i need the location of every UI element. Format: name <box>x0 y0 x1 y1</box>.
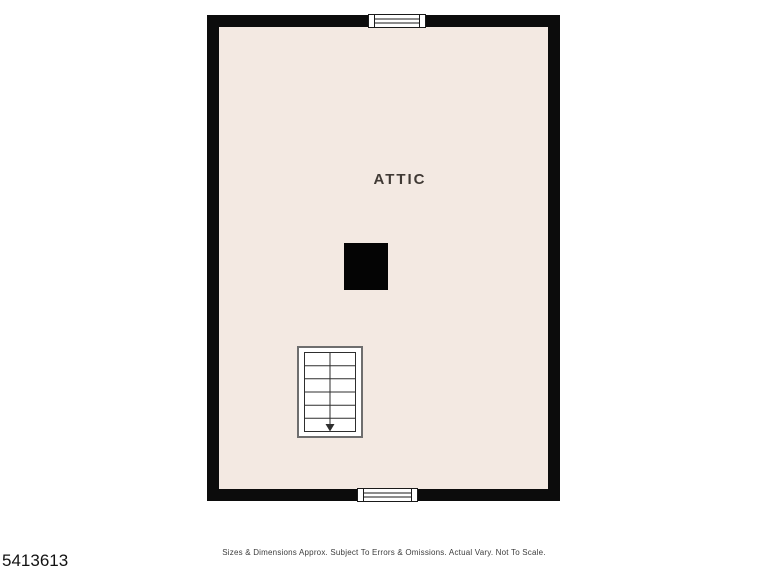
floorplan-page: ATTIC Sizes & Dimensions Approx. Subject… <box>0 0 768 576</box>
window-bottom-icon <box>357 488 418 502</box>
staircase <box>297 346 363 438</box>
chimney <box>344 243 388 290</box>
attic-floorplan: ATTIC <box>207 15 560 501</box>
window-top-icon <box>368 14 426 28</box>
listing-id: 5413613 <box>2 551 68 571</box>
room-label: ATTIC <box>330 171 470 188</box>
disclaimer-text: Sizes & Dimensions Approx. Subject To Er… <box>0 548 768 557</box>
